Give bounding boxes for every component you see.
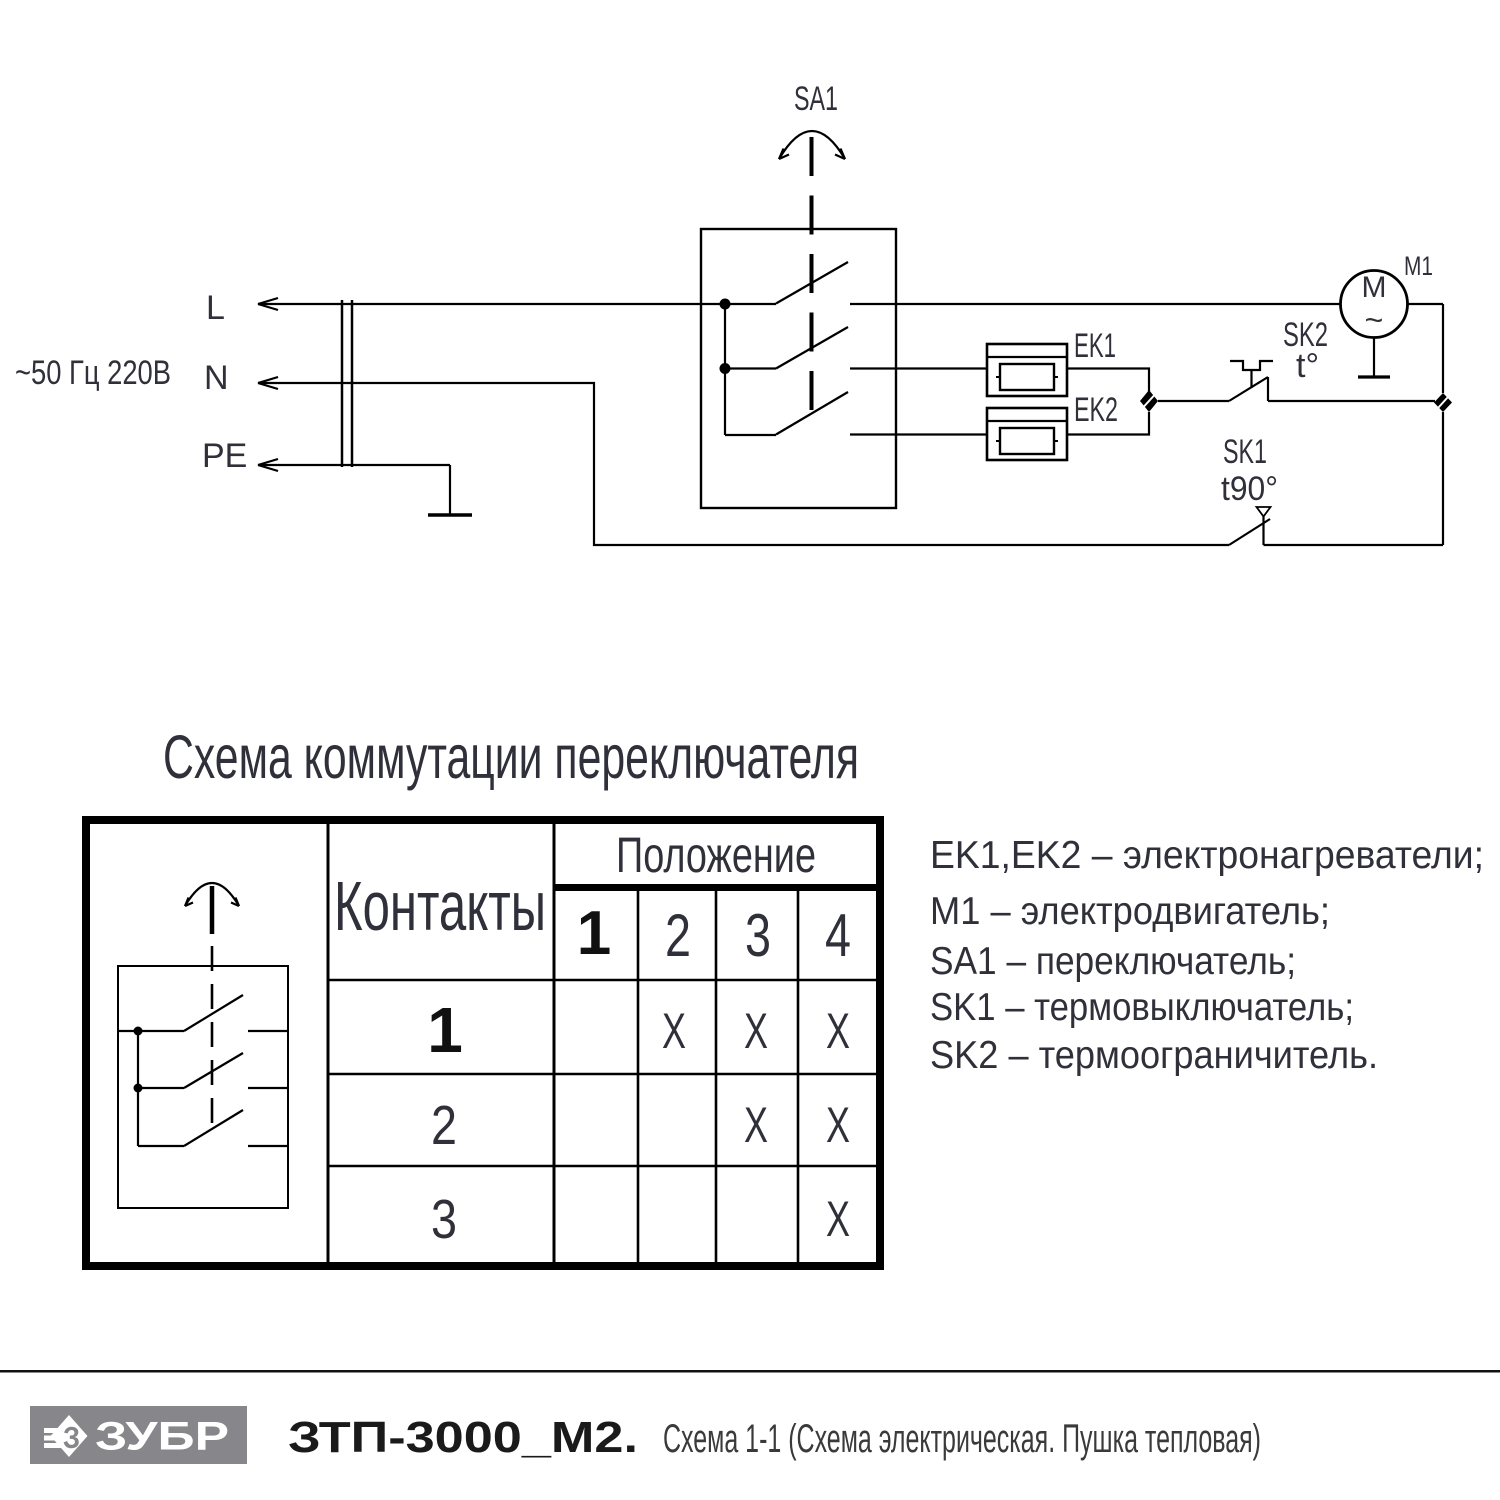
svg-text:2: 2: [431, 1094, 457, 1156]
svg-text:X: X: [662, 1003, 686, 1059]
svg-text:X: X: [826, 1097, 850, 1153]
svg-text:Положение: Положение: [616, 827, 816, 883]
svg-text:Контакты: Контакты: [334, 867, 546, 945]
svg-text:З: З: [63, 1420, 80, 1455]
svg-text:X: X: [826, 1191, 850, 1247]
svg-text:EK2: EK2: [1074, 391, 1118, 429]
svg-text:2: 2: [665, 902, 691, 969]
svg-text:M1 – электродвигатель;: M1 – электродвигатель;: [930, 890, 1330, 933]
svg-text:Схема 1-1 (Схема электрическая: Схема 1-1 (Схема электрическая. Пушка те…: [663, 1417, 1261, 1461]
svg-text:1: 1: [427, 994, 463, 1066]
svg-text:ЗУБР: ЗУБР: [95, 1415, 229, 1459]
svg-text:Схема коммутации переключателя: Схема коммутации переключателя: [163, 723, 859, 791]
svg-text:L: L: [206, 289, 225, 327]
svg-text:EK1,EK2 – электронагреватели: EK1,EK2 – электронагреватели;: [930, 834, 1484, 877]
svg-text:M: M: [1362, 271, 1387, 304]
svg-text:X: X: [744, 1097, 768, 1153]
svg-text:PE: PE: [202, 437, 247, 475]
svg-text:X: X: [744, 1003, 768, 1059]
svg-text:ЗТП-3000_М2.: ЗТП-3000_М2.: [288, 1413, 638, 1462]
svg-text:~: ~: [1365, 302, 1384, 338]
svg-text:t90°: t90°: [1221, 470, 1278, 508]
svg-text:SA1 – переключатель;: SA1 – переключатель;: [930, 940, 1296, 983]
svg-text:N: N: [204, 359, 229, 397]
svg-text:3: 3: [431, 1188, 457, 1250]
svg-text:SK1 – термовыключатель;: SK1 – термовыключатель;: [930, 986, 1354, 1029]
svg-text:1: 1: [577, 899, 611, 968]
svg-text:M1: M1: [1404, 251, 1433, 281]
svg-text:SA1: SA1: [794, 80, 838, 118]
svg-text:~50 Гц 220В: ~50 Гц 220В: [15, 354, 171, 392]
svg-text:SK2 – термоограничитель.: SK2 – термоограничитель.: [930, 1034, 1378, 1077]
svg-text:3: 3: [745, 902, 771, 969]
svg-text:EK1: EK1: [1074, 327, 1116, 365]
svg-text:4: 4: [825, 902, 851, 969]
svg-text:t°: t°: [1296, 347, 1319, 385]
svg-text:X: X: [826, 1003, 850, 1059]
svg-text:SK1: SK1: [1223, 433, 1267, 471]
